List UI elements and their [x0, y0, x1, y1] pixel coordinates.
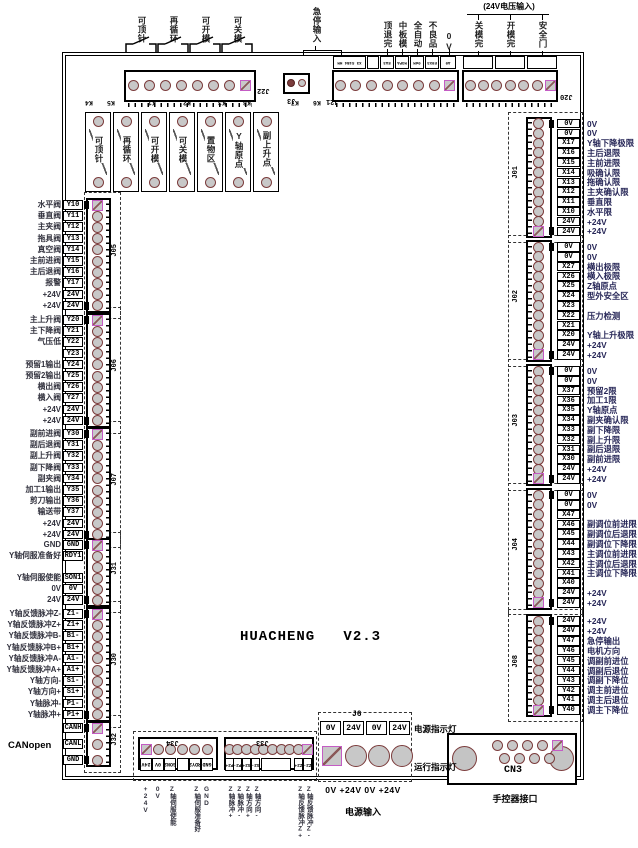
- connector-name: J05: [111, 244, 119, 257]
- pin: [92, 278, 103, 289]
- terminal-code-box: Y24: [63, 360, 83, 370]
- terminal-label: +24V: [43, 416, 61, 426]
- terminal-label: Y轴脉冲-: [30, 699, 61, 709]
- terminal-label: Y轴反馈脉冲B-: [9, 631, 61, 641]
- power-terminal-row-label: 0V +24V 0V +24V: [308, 785, 418, 795]
- terminal-code-box: X26: [557, 272, 580, 282]
- tick: [402, 49, 403, 56]
- pin: [533, 226, 544, 237]
- status-led: [391, 745, 413, 767]
- input-label: 关模完: [473, 21, 485, 48]
- pin: [92, 326, 103, 337]
- pin-ticks: [336, 103, 455, 107]
- pin-ticks: [466, 103, 554, 107]
- terminal-code-box: A1-: [63, 654, 83, 664]
- relay-label: 可开模: [149, 136, 161, 163]
- terminal-label: Y轴脉冲+: [28, 710, 61, 720]
- terminal-label: 0V: [154, 786, 161, 800]
- power-led-label: 电源指示灯: [414, 723, 457, 735]
- terminal-label: 主调位下降限: [587, 568, 637, 578]
- mount-tab: [549, 599, 554, 607]
- pin: [92, 687, 103, 698]
- terminal-label: +24V: [587, 474, 607, 484]
- pin-id-box: GND: [201, 758, 213, 771]
- terminal-label: 主夹确认限: [587, 187, 629, 197]
- pin: [92, 540, 103, 551]
- relay-tag: K2: [183, 99, 191, 106]
- tick: [417, 49, 418, 56]
- terminal-code-box: 0V: [557, 500, 580, 510]
- pin: [92, 739, 103, 750]
- pin-ticks: [106, 317, 110, 424]
- pin: [302, 744, 313, 755]
- terminal-code-box: S1-: [63, 676, 83, 686]
- terminal-code-box: 0V: [557, 366, 580, 376]
- terminal-code-box: X41: [557, 569, 580, 579]
- pin-id-box: S2+: [242, 758, 251, 771]
- pin: [429, 80, 440, 91]
- pin: [92, 676, 103, 687]
- terminal-label: +24V: [587, 588, 607, 598]
- pin-id-box: A0: [440, 56, 456, 69]
- connector-name: J31: [111, 562, 119, 575]
- terminal-code-box: X34: [557, 415, 580, 425]
- mount-tab: [84, 724, 89, 732]
- tick: [478, 14, 479, 20]
- estop-label: 急停输入: [311, 7, 323, 43]
- pin-ticks: [106, 202, 110, 309]
- terminal-code-box: 24V: [557, 598, 580, 608]
- power-terminal-box: 24V: [389, 721, 410, 735]
- pin-id-box: [261, 758, 291, 771]
- terminal-label: Y轴方向-: [30, 676, 61, 686]
- pin-ticks: [528, 368, 532, 482]
- connector-name: J07: [111, 473, 119, 486]
- pin: [92, 562, 103, 573]
- estop-line: [303, 50, 342, 51]
- terminal-code-box: X37: [557, 386, 580, 396]
- pin: [514, 753, 525, 764]
- terminal-label: +24V: [587, 464, 607, 474]
- estop-line: [341, 50, 342, 56]
- terminal-code-box: X15: [557, 158, 580, 168]
- connector-name: J20: [560, 92, 573, 100]
- terminal-label: Y轴反馈脉冲Z-: [9, 609, 61, 619]
- pin: [92, 573, 103, 584]
- terminal-code-box: X36: [557, 396, 580, 406]
- terminal-label: 0V: [51, 584, 61, 594]
- mount-tab: [549, 120, 554, 128]
- terminal-label: Z轴原点: [587, 281, 617, 291]
- terminal-code-box: X40: [557, 578, 580, 588]
- terminal-code-box: X10: [557, 207, 580, 217]
- terminal-code-box: 24V: [557, 588, 580, 598]
- power-terminal-box: 0V: [366, 721, 387, 735]
- pin-ticks: [106, 611, 110, 718]
- pin: [92, 665, 103, 676]
- switch-contact-icon: [155, 33, 191, 53]
- relay-tag: K3: [218, 99, 226, 106]
- terminal-code-box: Y47: [557, 636, 580, 646]
- mount-tab: [84, 430, 89, 438]
- relay-label: 可顶针: [93, 136, 105, 163]
- terminal-code-box: 0V: [557, 242, 580, 252]
- terminal-label: 调副前进位: [587, 656, 629, 666]
- pin-ticks: [106, 431, 110, 538]
- pin: [202, 744, 213, 755]
- terminal-code-box: 24V: [557, 227, 580, 237]
- terminal-label: 吸确认限: [587, 168, 620, 178]
- terminal-label: 0V: [587, 366, 597, 376]
- terminal-label: 副调位下降限: [587, 539, 637, 549]
- mount-tab: [549, 367, 554, 375]
- terminal-code-box: SON1: [63, 573, 83, 583]
- terminal-label: +24V: [587, 217, 607, 227]
- pin: [92, 211, 103, 222]
- terminal-code-box: Z1+: [63, 620, 83, 630]
- terminal-label: 真空阀: [38, 245, 61, 255]
- terminal-code-box: X11: [557, 197, 580, 207]
- terminal-code-box: 24V: [557, 626, 580, 636]
- terminal-code-box: P1+: [63, 710, 83, 720]
- relay-pin: [93, 116, 104, 127]
- terminal-code-box: Y10: [63, 200, 83, 210]
- terminal-label: 主后退限: [587, 148, 620, 158]
- canopen-label: CANopen: [8, 740, 51, 751]
- input-label: 全自动: [412, 21, 424, 48]
- terminal-code-box: X35: [557, 405, 580, 415]
- terminal-code-box: Y15: [63, 256, 83, 266]
- terminal-code-box: X22: [557, 311, 580, 321]
- terminal-label: 副调位前进限: [587, 519, 637, 529]
- switch-contact-icon: [219, 33, 255, 53]
- terminal-label: 拖具阀: [38, 234, 61, 244]
- pin: [413, 80, 424, 91]
- terminal-code-box: 0V: [557, 129, 580, 139]
- hand-controller-caption: 手控器接口: [476, 792, 554, 805]
- relay-pin: [205, 177, 216, 188]
- terminal-label: 预留1输出: [25, 360, 61, 370]
- power-input-caption: 电源输入: [332, 805, 394, 818]
- terminal-code-box: 0V: [63, 584, 83, 594]
- terminal-code-box: X25: [557, 281, 580, 291]
- terminal-code-box: 24V: [63, 416, 83, 426]
- terminal-code-box: 24V: [557, 350, 580, 360]
- tick: [478, 51, 479, 56]
- pin: [208, 80, 219, 91]
- terminal-code-box: Y13: [63, 234, 83, 244]
- terminal-label: 预留2限: [587, 386, 617, 396]
- terminal-code-box: X12: [557, 187, 580, 197]
- connector-name: J22: [257, 86, 270, 94]
- pin: [92, 609, 103, 620]
- terminal-label: Z轴伺服使能: [166, 786, 176, 826]
- pin: [537, 740, 548, 751]
- pin: [92, 200, 103, 211]
- pin: [92, 507, 103, 518]
- terminal-code-box: X13: [557, 178, 580, 188]
- pin-id-box: EA3: [380, 56, 394, 69]
- terminal-label: 调副下降位: [587, 675, 629, 685]
- pin: [532, 80, 543, 91]
- run-led-label: 运行指示灯: [414, 761, 457, 773]
- terminal-label: 水平限: [587, 207, 612, 217]
- pin: [545, 80, 556, 91]
- relay-pin: [233, 116, 244, 127]
- relay-pin: [205, 116, 216, 127]
- terminal-code-box: X44: [557, 539, 580, 549]
- terminal-code-box: Y23: [63, 349, 83, 359]
- relay-pin: [149, 116, 160, 127]
- pin-ticks: [106, 725, 110, 763]
- connector-name: J02: [512, 290, 520, 303]
- terminal-label: Y轴伺服使能: [17, 573, 61, 583]
- terminal-code-box: X46: [557, 520, 580, 530]
- terminal-code-box: 24V: [63, 519, 83, 529]
- terminal-label: 0V: [587, 119, 597, 129]
- pin-id-box: X3 S1B4 HM: [333, 56, 366, 69]
- relay-pin: [149, 177, 160, 188]
- pin: [382, 80, 393, 91]
- pin: [240, 80, 251, 91]
- terminal-label: GND: [44, 540, 61, 550]
- mount-tab: [84, 201, 89, 209]
- input-label: 安全门: [537, 21, 549, 48]
- connector-name: J3: [287, 96, 295, 104]
- terminal-label: 横出极限: [587, 262, 620, 272]
- terminal-code-box: X27: [557, 262, 580, 272]
- relay-pin: [177, 116, 188, 127]
- pin-id-box: M3PA: [395, 56, 409, 69]
- terminal-code-box: X32: [557, 435, 580, 445]
- terminal-label: GND: [203, 786, 210, 807]
- mount-tab: [549, 491, 554, 499]
- pin: [478, 80, 489, 91]
- terminal-code-box: Y21: [63, 326, 83, 336]
- pin: [192, 80, 203, 91]
- terminal-label: 副上升限: [587, 435, 620, 445]
- connector-name: J04: [512, 538, 520, 551]
- terminal-code-box: Y22: [63, 337, 83, 347]
- pin: [92, 496, 103, 507]
- pin: [444, 80, 455, 91]
- pin: [92, 267, 103, 278]
- terminal-label: 剪刀输出: [30, 496, 61, 506]
- pin: [492, 740, 503, 751]
- mount-tab: [549, 706, 554, 714]
- pin-id-box: P2-: [233, 758, 242, 771]
- terminal-code-box: X30: [557, 454, 580, 464]
- mount-tab: [84, 596, 89, 604]
- connector-name: J03: [512, 414, 520, 427]
- terminal-label: 报警: [45, 278, 61, 288]
- terminal-code-box: 0V: [557, 252, 580, 262]
- terminal-code-box: Y42: [557, 686, 580, 696]
- terminal-label: 0V: [587, 500, 597, 510]
- terminal-label: 调副后退位: [587, 666, 629, 676]
- connector-name: J08: [512, 655, 520, 668]
- connector-name: J34: [166, 738, 179, 746]
- terminal-label: 型外安全区: [587, 291, 629, 301]
- pin: [92, 584, 103, 595]
- switch-contact-icon: [123, 33, 159, 53]
- terminal-code-box: X45: [557, 529, 580, 539]
- connector-name: J21: [326, 97, 339, 105]
- pin: [533, 705, 544, 716]
- terminal-label: 预留2输出: [25, 371, 61, 381]
- terminal-label: 垂直限: [587, 197, 612, 207]
- connector-name: J30: [111, 653, 119, 666]
- mount-tab: [84, 417, 89, 425]
- terminal-label: Y轴上升极限: [587, 330, 634, 340]
- terminal-code-box: 24V: [557, 616, 580, 626]
- pin: [153, 744, 164, 755]
- terminal-code-box: X33: [557, 425, 580, 435]
- terminal-label: 横入极限: [587, 271, 620, 281]
- terminal-code-box: 24V: [63, 595, 83, 605]
- terminal-code-box: Y36: [63, 496, 83, 506]
- terminal-label: 拖确认限: [587, 177, 620, 187]
- terminal-label: 输送带: [38, 507, 61, 517]
- pin: [499, 753, 510, 764]
- relay-pin: [177, 177, 188, 188]
- terminal-label: 副下降限: [587, 425, 620, 435]
- terminal-code-box: Y32: [63, 451, 83, 461]
- input-label: 中板模: [397, 21, 409, 48]
- tick: [510, 51, 511, 56]
- pin: [533, 473, 544, 484]
- pin-ticks: [528, 618, 532, 713]
- terminal-code-box: X23: [557, 301, 580, 311]
- terminal-label: 0V: [587, 128, 597, 138]
- terminal-label: 主下降阀: [30, 326, 61, 336]
- terminal-code-box: X14: [557, 168, 580, 178]
- terminal-label: 加工1输出: [25, 485, 61, 495]
- pin: [92, 631, 103, 642]
- terminal-code-box: Y17: [63, 278, 83, 288]
- pin: [128, 80, 139, 91]
- pin-id-box: 0V: [152, 758, 164, 771]
- terminal-code-box: Y27: [63, 393, 83, 403]
- mount-tab: [84, 316, 89, 324]
- terminal-label: +24V: [587, 598, 607, 608]
- terminal-label: Y轴伺服准备好: [9, 551, 61, 561]
- pin: [533, 349, 544, 360]
- relay-label: 置物区: [205, 136, 217, 163]
- relay-tag: K6: [313, 99, 321, 106]
- pin: [298, 79, 306, 87]
- pin-id-box: SON2: [164, 758, 176, 771]
- switch-contact-icon: [187, 33, 223, 53]
- relay-pin: [121, 177, 132, 188]
- terminal-code-box: S1+: [63, 687, 83, 697]
- terminal-label: Y轴反馈脉冲Z+: [7, 620, 61, 630]
- terminal-code-box: 24V: [557, 217, 580, 227]
- terminal-code-box: X47: [557, 510, 580, 520]
- mount-tab: [549, 227, 554, 235]
- terminal-label: 副后退阀: [30, 440, 61, 450]
- relay-tag: K5: [107, 99, 115, 106]
- power-terminal-box: 0V: [320, 721, 341, 735]
- terminal-label: 副夹确认限: [587, 415, 629, 425]
- connector-name: J33: [256, 738, 269, 746]
- relay-tag: K8: [243, 99, 251, 106]
- pcb-wiring-diagram: HUACHENG V2.3 (24V电压输入) CANopen 电源指示灯 运行…: [0, 0, 638, 848]
- pin-id-box: Z2-: [303, 758, 312, 771]
- terminal-label: 24V: [47, 595, 61, 605]
- terminal-code-box: 24V: [557, 474, 580, 484]
- terminal-label: +24V: [587, 626, 607, 636]
- input-label: 不良品: [427, 21, 439, 48]
- pin: [529, 753, 540, 764]
- terminal-label: Z轴方向-: [251, 786, 261, 820]
- bracket-line: [467, 14, 549, 15]
- terminal-code-box: Y31: [63, 440, 83, 450]
- terminal-code-box: X42: [557, 559, 580, 569]
- pin-id-box: [367, 56, 379, 69]
- terminal-label: Y轴反馈脉冲A-: [9, 654, 61, 664]
- terminal-label: 副夹阀: [38, 474, 61, 484]
- mount-tab: [84, 302, 89, 310]
- terminal-label: 急停输出: [587, 636, 620, 646]
- relay-pin: [261, 116, 272, 127]
- relay-pin: [121, 116, 132, 127]
- terminal-label: 加工1限: [587, 395, 617, 405]
- terminal-label: 主调位前进限: [587, 549, 637, 559]
- pin: [92, 337, 103, 348]
- terminal-label: 电机方向: [587, 646, 620, 656]
- pin: [507, 740, 518, 751]
- pin-id-box: Z2+: [294, 758, 303, 771]
- terminal-code-box: CANL: [63, 739, 83, 749]
- terminal-label: 垂直阀: [38, 211, 61, 221]
- pin: [92, 382, 103, 393]
- terminal-label: 水平阀: [38, 200, 61, 210]
- pin: [92, 755, 103, 766]
- pin: [92, 222, 103, 233]
- terminal-code-box: X16: [557, 148, 580, 158]
- terminal-label: +24V: [587, 616, 607, 626]
- power-terminal-box: 24V: [343, 721, 364, 735]
- pin: [141, 744, 152, 755]
- pin: [92, 595, 103, 606]
- terminal-code-box: 24V: [557, 464, 580, 474]
- terminal-label: 主后退阀: [30, 267, 61, 277]
- mount-tab: [84, 711, 89, 719]
- terminal-code-box: Y16: [63, 267, 83, 277]
- status-led: [345, 745, 367, 767]
- pin-ticks: [528, 121, 532, 235]
- pin: [552, 740, 563, 751]
- pin: [92, 485, 103, 496]
- terminal-label: 主上升阀: [30, 315, 61, 325]
- tick: [542, 51, 543, 56]
- terminal-label: 横入阀: [38, 393, 61, 403]
- relay-label: 副上升点: [261, 131, 273, 167]
- terminal-label: 主前进阀: [30, 256, 61, 266]
- voltage-input-bracket-label: (24V电压输入): [455, 1, 563, 12]
- terminal-code-box: 24V: [63, 405, 83, 415]
- pin-id-box: 24V: [140, 758, 152, 771]
- pin: [335, 80, 346, 91]
- terminal-code-box: 24V: [557, 340, 580, 350]
- pin-id-box: [495, 56, 525, 69]
- pin: [92, 429, 103, 440]
- terminal-label: 副上升阀: [30, 451, 61, 461]
- terminal-code-box: CANH: [63, 723, 83, 733]
- terminal-label: 压力检测: [587, 311, 620, 321]
- pin-id-box: 0dM: [410, 56, 424, 69]
